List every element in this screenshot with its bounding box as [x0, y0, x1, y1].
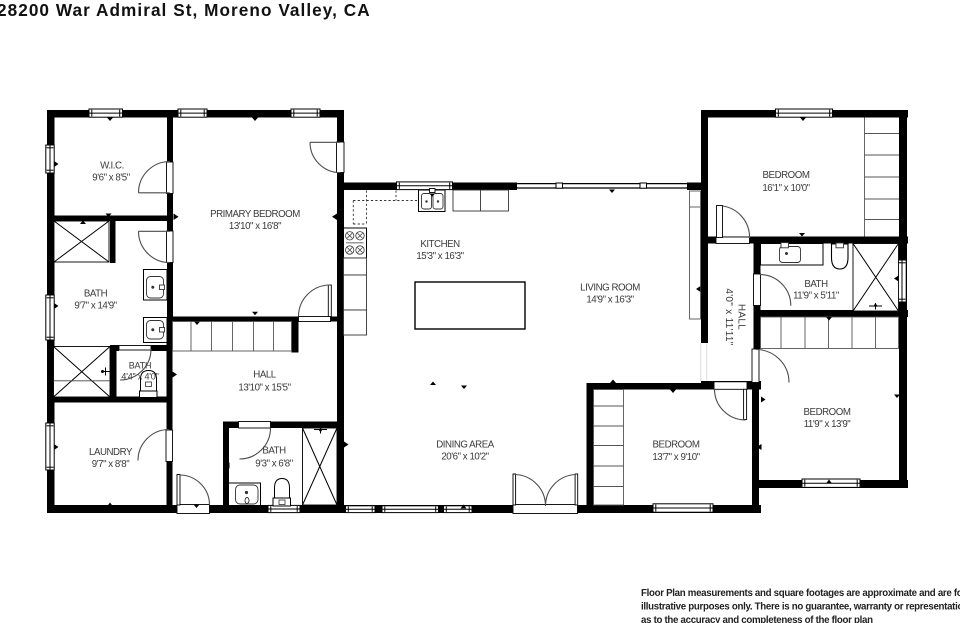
svg-text:9'6" x 8'5": 9'6" x 8'5" — [92, 173, 130, 184]
svg-text:9'7" x 8'8": 9'7" x 8'8" — [92, 459, 130, 470]
svg-text:13'7" x 9'10": 13'7" x 9'10" — [652, 452, 700, 463]
svg-text:Floor Plan measurements and sq: Floor Plan measurements and square foota… — [641, 588, 960, 599]
svg-text:LIVING ROOM: LIVING ROOM — [580, 283, 640, 294]
svg-text:4'0" x 11'11": 4'0" x 11'11" — [723, 288, 734, 345]
svg-text:28200 War Admiral St, Moreno V: 28200 War Admiral St, Moreno Valley, CA — [0, 0, 371, 20]
svg-text:9'3" x 6'8": 9'3" x 6'8" — [255, 459, 293, 470]
svg-text:14'9" x 16'3": 14'9" x 16'3" — [586, 295, 634, 306]
svg-text:15'3" x 16'3": 15'3" x 16'3" — [416, 251, 464, 262]
svg-text:illustrative purposes only. Th: illustrative purposes only. There is no … — [641, 602, 960, 613]
svg-text:LAUNDRY: LAUNDRY — [89, 447, 133, 458]
svg-text:BATH: BATH — [84, 289, 108, 300]
svg-text:HALL: HALL — [735, 304, 746, 330]
svg-text:PRIMARY BEDROOM: PRIMARY BEDROOM — [210, 209, 300, 220]
svg-text:13'10" x 15'5": 13'10" x 15'5" — [238, 383, 291, 394]
svg-text:11'9" x 13'9": 11'9" x 13'9" — [804, 419, 852, 430]
svg-text:16'1" x 10'0": 16'1" x 10'0" — [762, 183, 810, 194]
svg-text:BATH: BATH — [804, 279, 828, 290]
svg-text:BEDROOM: BEDROOM — [763, 170, 810, 181]
svg-text:HALL: HALL — [253, 370, 276, 381]
svg-text:11'9" x 5'11": 11'9" x 5'11" — [793, 291, 840, 302]
svg-text:BATH: BATH — [262, 446, 286, 457]
svg-text:KITCHEN: KITCHEN — [420, 239, 460, 250]
svg-text:as to the accuracy and complet: as to the accuracy and completeness of t… — [641, 615, 873, 623]
svg-text:20'6" x 10'2": 20'6" x 10'2" — [441, 452, 489, 463]
svg-text:DINING AREA: DINING AREA — [436, 440, 494, 451]
svg-text:W.I.C.: W.I.C. — [100, 161, 124, 172]
svg-text:13'10" x 16'8": 13'10" x 16'8" — [229, 221, 282, 232]
svg-text:9'7" x 14'9": 9'7" x 14'9" — [74, 301, 117, 312]
svg-text:BATH: BATH — [129, 361, 152, 371]
svg-text:BEDROOM: BEDROOM — [653, 440, 700, 451]
svg-text:BEDROOM: BEDROOM — [804, 407, 851, 418]
svg-text:4'4" x 4'0": 4'4" x 4'0" — [121, 372, 158, 382]
